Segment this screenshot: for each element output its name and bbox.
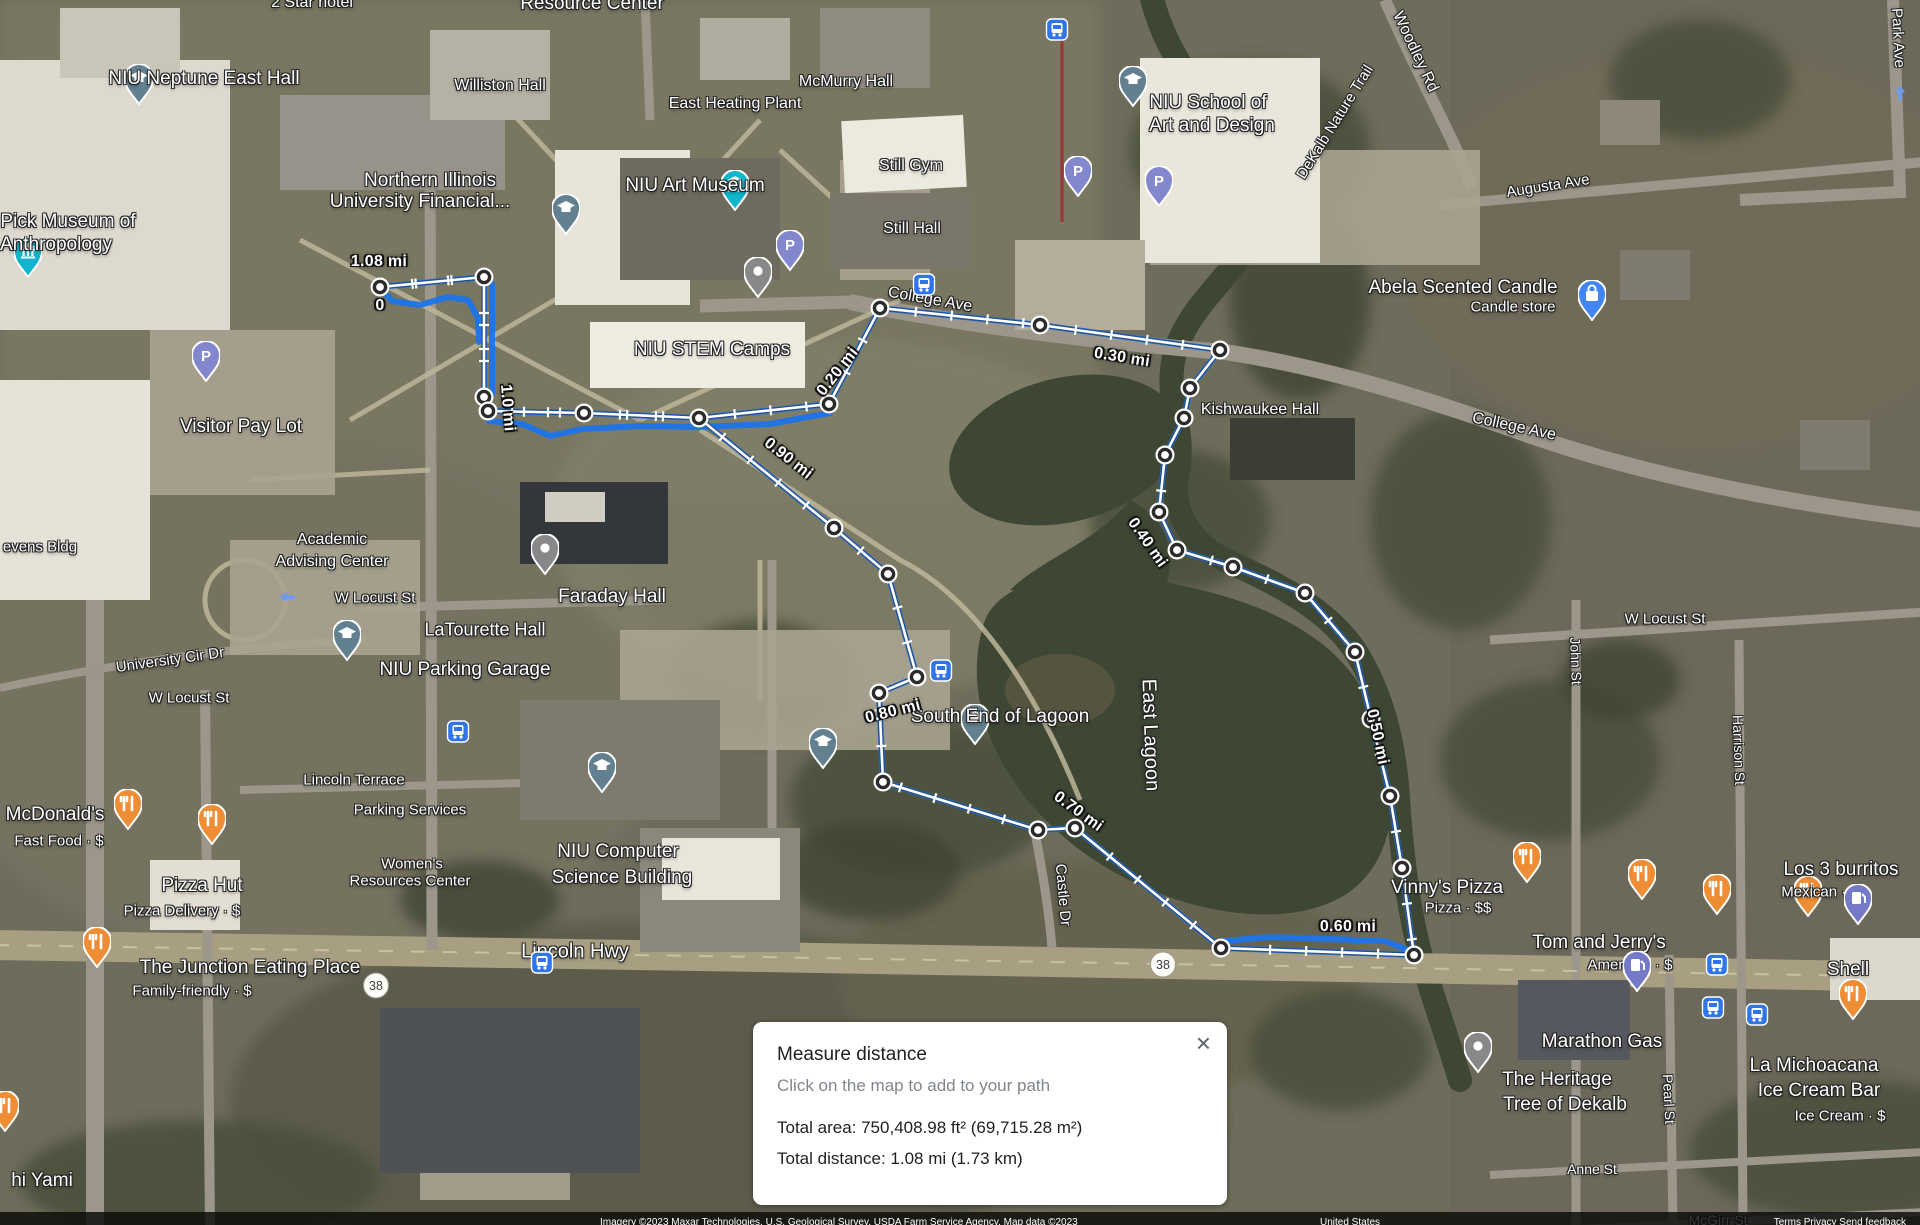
- measure-tick: [1023, 318, 1024, 328]
- measure-tick: [806, 401, 807, 411]
- measure-node[interactable]: [877, 776, 888, 787]
- measure-node[interactable]: [1365, 713, 1376, 724]
- measure-node[interactable]: [1171, 544, 1182, 555]
- attribution-links[interactable]: Terms Privacy Send feedback: [1774, 1217, 1906, 1225]
- route-line-blue: [380, 287, 479, 342]
- measure-node[interactable]: [578, 407, 589, 418]
- measure-node[interactable]: [1153, 506, 1164, 517]
- measure-node[interactable]: [874, 302, 885, 313]
- route-line-blue: [380, 277, 1414, 955]
- measure-tick: [1111, 330, 1112, 340]
- dialog-hint: Click on the map to add to your path: [777, 1076, 1203, 1096]
- measure-node[interactable]: [873, 687, 884, 698]
- measure-distance-dialog: × Measure distance Click on the map to a…: [753, 1022, 1227, 1205]
- measure-node[interactable]: [828, 522, 839, 533]
- measure-node[interactable]: [1396, 862, 1407, 873]
- measure-tick: [1407, 939, 1417, 940]
- measure-tick: [1182, 340, 1183, 350]
- measure-node[interactable]: [1069, 822, 1080, 833]
- dialog-title: Measure distance: [777, 1044, 1203, 1066]
- measure-tick: [734, 409, 735, 419]
- measure-tick: [1156, 490, 1166, 491]
- measure-tick: [770, 405, 771, 415]
- measure-node[interactable]: [823, 398, 834, 409]
- measure-node[interactable]: [1184, 382, 1195, 393]
- measure-tick: [1402, 903, 1412, 904]
- measure-tick: [1075, 325, 1076, 335]
- measure-tick: [1146, 335, 1147, 345]
- measure-node[interactable]: [478, 391, 489, 402]
- attribution-imagery: Imagery ©2023 Maxar Technologies, U.S. G…: [600, 1217, 1078, 1225]
- measure-tick: [1375, 753, 1385, 755]
- measure-node[interactable]: [1214, 344, 1225, 355]
- measure-node[interactable]: [1227, 561, 1238, 572]
- measure-node[interactable]: [1384, 790, 1395, 801]
- measure-tick: [448, 275, 449, 285]
- close-icon[interactable]: ×: [1196, 1030, 1211, 1056]
- measure-node[interactable]: [1159, 449, 1170, 460]
- attribution-region: United States: [1320, 1217, 1380, 1225]
- measure-node[interactable]: [693, 412, 704, 423]
- total-distance-value: Total distance: 1.08 mi (1.73 km): [777, 1149, 1203, 1169]
- measure-node[interactable]: [882, 568, 893, 579]
- measure-node[interactable]: [1349, 646, 1360, 657]
- measure-node[interactable]: [1032, 824, 1043, 835]
- total-area-value: Total area: 750,408.98 ft² (69,715.28 m²…: [777, 1118, 1203, 1138]
- measure-node[interactable]: [1178, 412, 1189, 423]
- measure-tick: [951, 311, 952, 321]
- measure-node[interactable]: [1034, 319, 1045, 330]
- measure-tick: [415, 279, 416, 289]
- measure-tick: [1391, 831, 1401, 833]
- measure-node[interactable]: [374, 281, 385, 292]
- satellite-map-canvas[interactable]: McDonald'sFast Food · $ Pizza HutPizza D…: [0, 0, 1920, 1225]
- measure-node[interactable]: [478, 271, 489, 282]
- map-attribution-bar: Imagery ©2023 Maxar Technologies, U.S. G…: [0, 1212, 1920, 1225]
- measure-node[interactable]: [1215, 942, 1226, 953]
- measure-node[interactable]: [482, 405, 493, 416]
- measure-node[interactable]: [911, 671, 922, 682]
- measure-tick: [412, 279, 413, 289]
- measure-tick: [915, 307, 916, 317]
- measure-tick: [987, 314, 988, 324]
- measure-node[interactable]: [1408, 949, 1419, 960]
- measure-tick: [451, 275, 452, 285]
- measure-tick: [1358, 686, 1368, 688]
- measure-node[interactable]: [1299, 587, 1310, 598]
